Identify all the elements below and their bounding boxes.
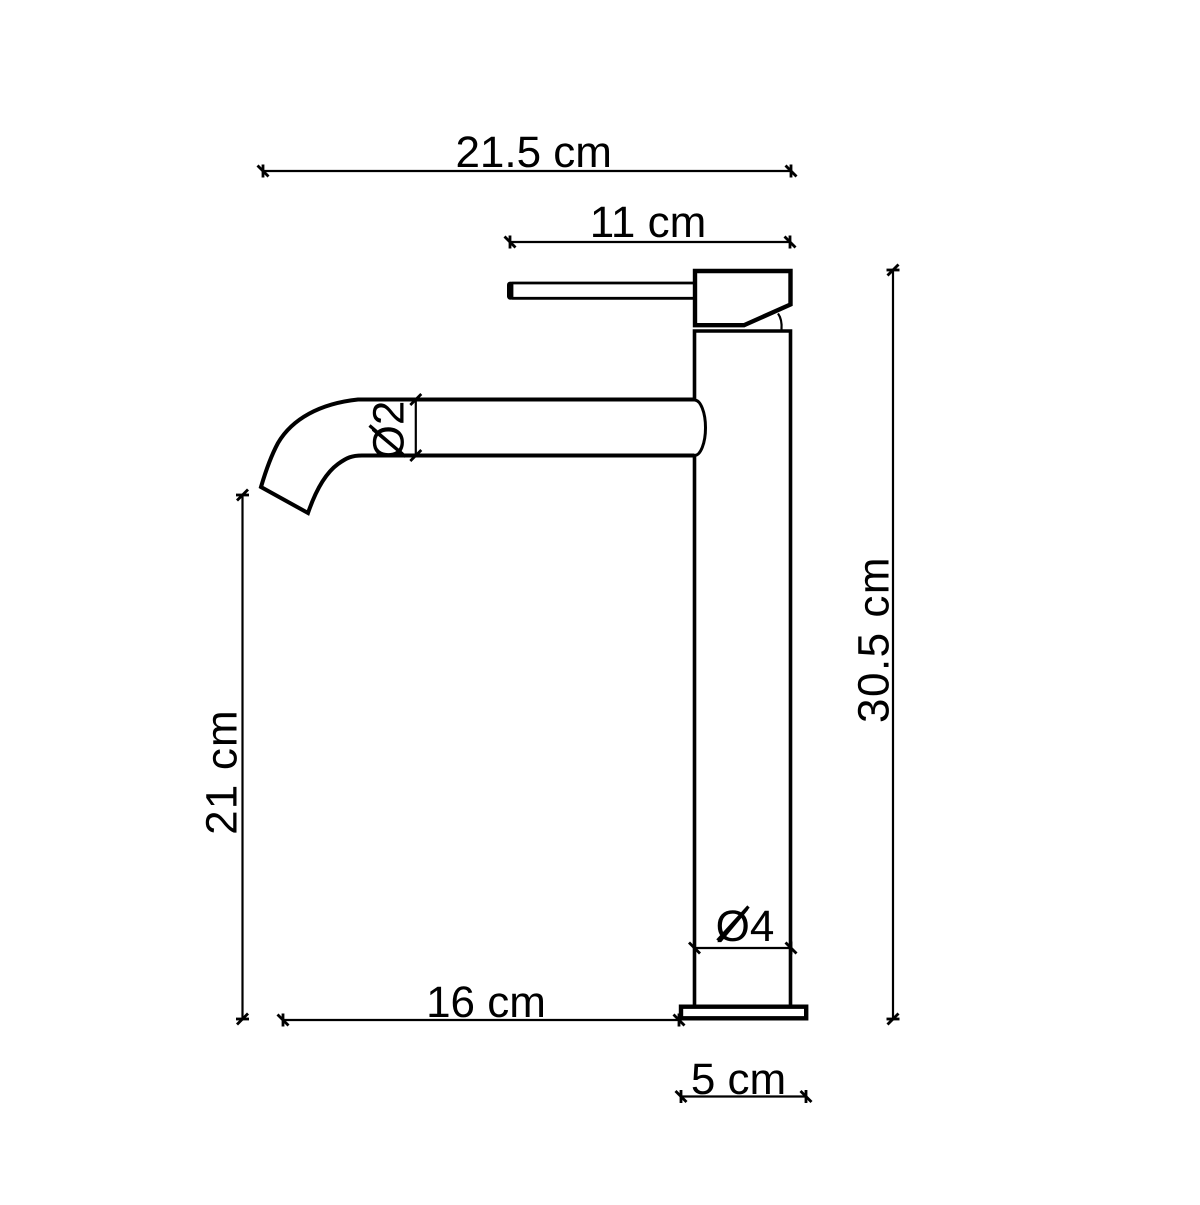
svg-text:30.5 cm: 30.5 cm xyxy=(850,556,899,723)
svg-text:21 cm: 21 cm xyxy=(198,709,247,835)
svg-text:21.5 cm: 21.5 cm xyxy=(455,128,612,177)
svg-text:Ø2: Ø2 xyxy=(365,401,414,460)
svg-text:5 cm: 5 cm xyxy=(691,1055,786,1104)
svg-text:16 cm: 16 cm xyxy=(426,978,546,1027)
svg-text:11 cm: 11 cm xyxy=(590,198,707,247)
